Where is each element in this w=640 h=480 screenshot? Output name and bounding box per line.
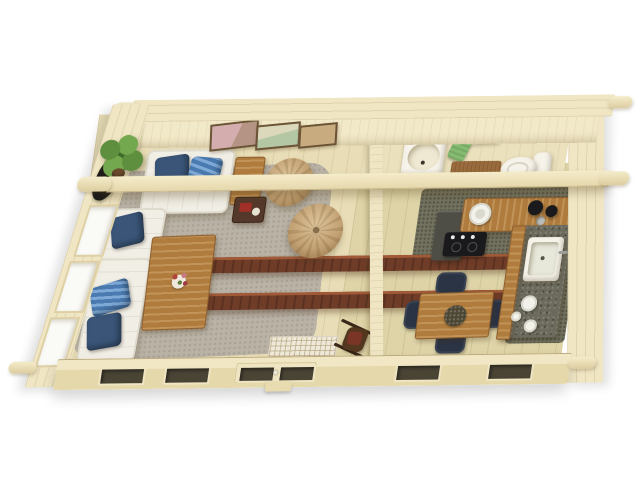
table-wreath bbox=[443, 305, 468, 327]
cooking-pot bbox=[545, 205, 559, 217]
front-window-2 bbox=[163, 366, 212, 385]
dining-table bbox=[414, 291, 494, 339]
log-end-front-right bbox=[567, 357, 597, 369]
steel-pot bbox=[535, 216, 545, 225]
front-window-1 bbox=[98, 367, 147, 386]
kettle bbox=[527, 200, 544, 215]
flowers bbox=[167, 270, 191, 291]
plate-center bbox=[474, 209, 485, 219]
cooktop-knob-3 bbox=[471, 235, 476, 239]
purlin-end-left bbox=[76, 176, 112, 191]
door-panel-left bbox=[237, 365, 276, 382]
coffee-table bbox=[141, 234, 216, 331]
sink-tap bbox=[558, 251, 567, 254]
corner-sofa-pillow-navy-2 bbox=[87, 312, 122, 352]
cup bbox=[510, 311, 521, 321]
decor-item bbox=[251, 208, 260, 216]
front-window-4 bbox=[486, 362, 535, 381]
kitchen-sink bbox=[522, 237, 564, 282]
front-window-3 bbox=[394, 363, 443, 382]
purlin-end-right bbox=[598, 171, 630, 185]
log-end-front-left bbox=[8, 361, 38, 373]
door-panel-right bbox=[277, 365, 316, 382]
decor-side-table bbox=[231, 197, 267, 223]
burner bbox=[451, 242, 462, 252]
serving-plate bbox=[468, 203, 493, 225]
burner bbox=[467, 242, 478, 252]
wall-art-green bbox=[255, 121, 301, 150]
washbasin-bowl bbox=[406, 142, 442, 170]
door-step bbox=[265, 381, 292, 391]
cooktop-knob-2 bbox=[461, 235, 466, 239]
log-end-back-right bbox=[607, 96, 633, 108]
cooktop bbox=[442, 232, 488, 257]
plate bbox=[523, 319, 538, 332]
page: { "scene": { "title": "Top-down 3D floor… bbox=[0, 0, 640, 480]
cabin-floorplan bbox=[108, 105, 598, 387]
books-red bbox=[239, 203, 252, 212]
front-double-door bbox=[234, 362, 317, 383]
wall-art-tan bbox=[298, 122, 338, 149]
teapot bbox=[520, 295, 538, 311]
cooktop-knob-1 bbox=[451, 235, 456, 239]
partition-wall bbox=[369, 111, 383, 365]
door-handle bbox=[273, 370, 278, 374]
wall-front bbox=[53, 353, 571, 390]
